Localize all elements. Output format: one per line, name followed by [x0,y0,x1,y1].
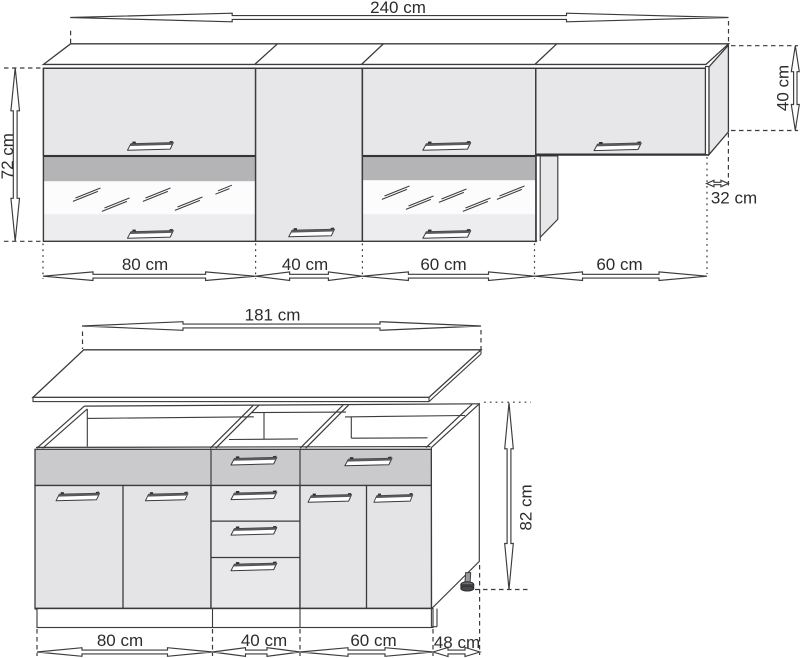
svg-text:80 cm: 80 cm [122,255,168,274]
svg-text:60 cm: 60 cm [596,255,642,274]
svg-text:181 cm: 181 cm [245,306,301,325]
svg-text:82 cm: 82 cm [517,484,536,530]
svg-text:40 cm: 40 cm [241,631,287,650]
svg-text:48 cm: 48 cm [434,633,480,652]
svg-text:240 cm: 240 cm [370,0,426,17]
svg-text:40 cm: 40 cm [774,65,793,111]
svg-text:32 cm: 32 cm [711,189,757,208]
svg-text:72 cm: 72 cm [0,133,17,179]
svg-text:60 cm: 60 cm [350,631,396,650]
svg-text:80 cm: 80 cm [97,631,143,650]
svg-text:40 cm: 40 cm [282,255,328,274]
svg-text:60 cm: 60 cm [420,255,466,274]
